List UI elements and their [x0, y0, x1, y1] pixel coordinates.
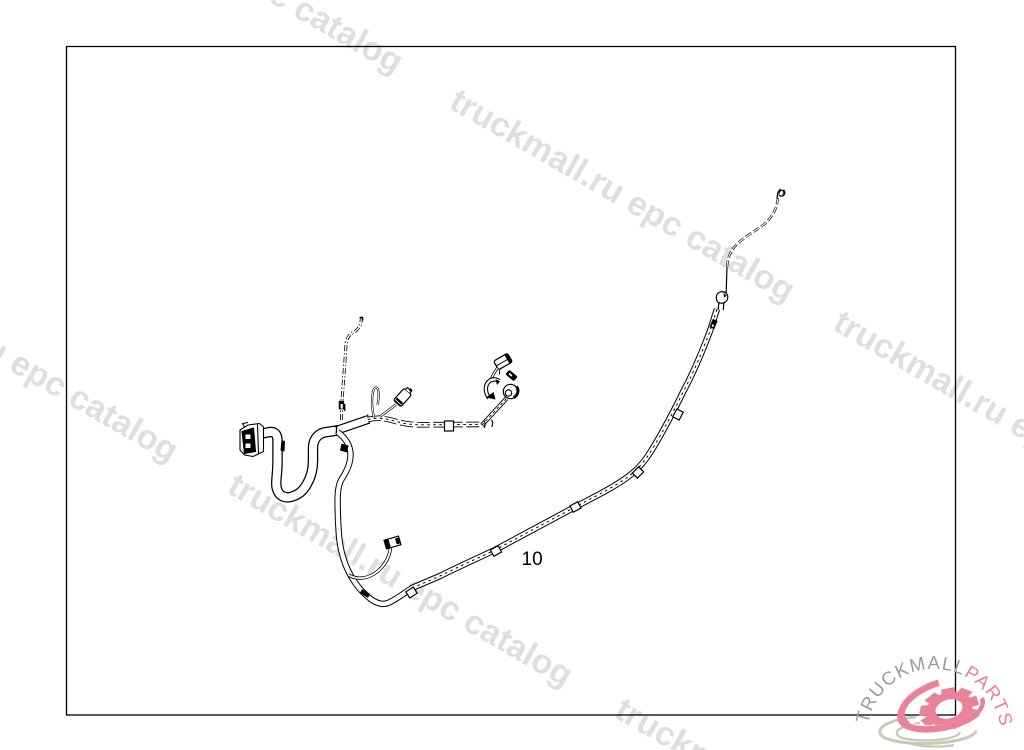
svg-text:10: 10 — [522, 549, 543, 570]
svg-text:truckmall.ru epc catalog: truckmall.ru epc catalog — [52, 0, 410, 81]
svg-text:truckmall.ru epc catalog: truckmall.ru epc catalog — [222, 466, 580, 694]
svg-text:truckmall.ru epc catalog: truckmall.ru epc catalog — [444, 81, 802, 309]
svg-text:truckmall.ru epc catalog: truckmall.ru epc catalog — [0, 241, 185, 469]
svg-text:truckmall.ru epc catalog: truckmall.ru epc catalog — [827, 303, 1024, 531]
